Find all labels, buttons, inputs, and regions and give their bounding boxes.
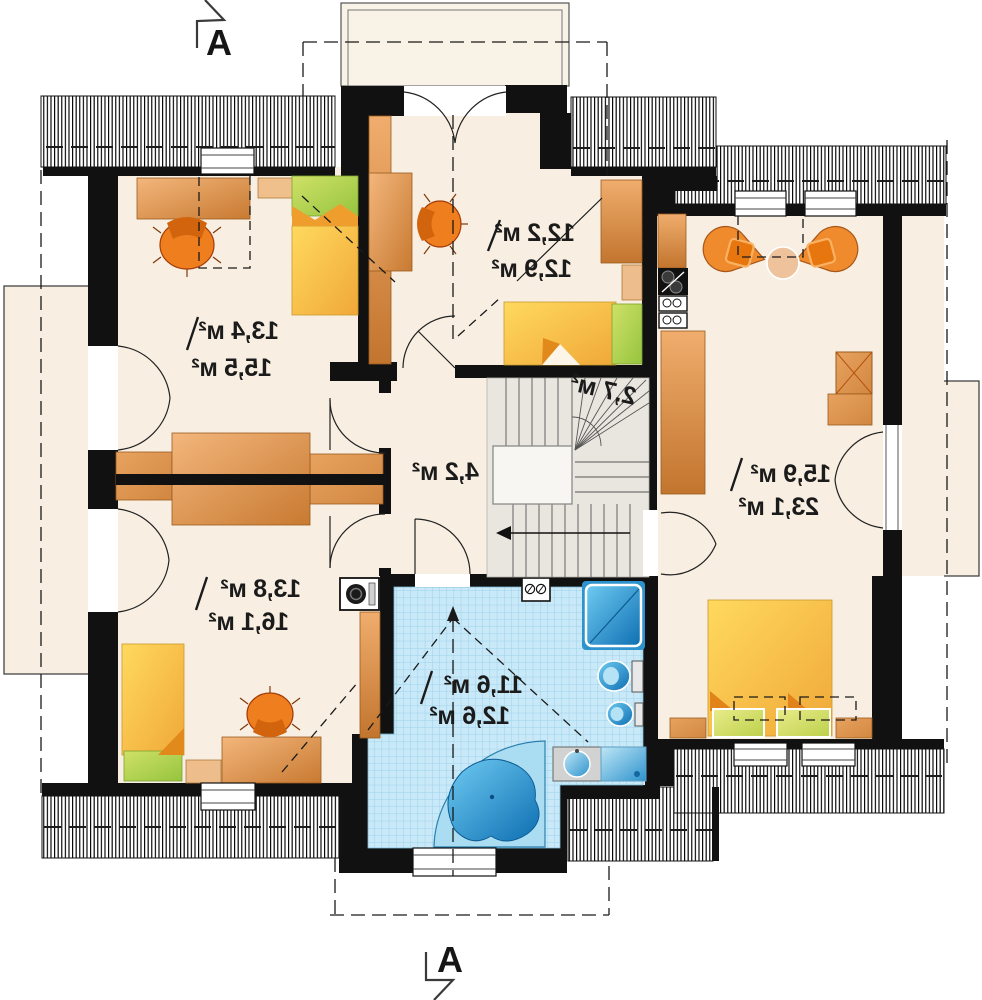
svg-text:16,1 м²: 16,1 м² xyxy=(209,608,289,636)
svg-text:4,2 м²: 4,2 м² xyxy=(412,458,479,486)
svg-text:12,6 м²: 12,6 м² xyxy=(430,702,510,730)
svg-text:15,5 м²: 15,5 м² xyxy=(192,354,272,382)
svg-text:11,6 м²: 11,6 м² xyxy=(444,671,523,699)
svg-text:12,9 м²: 12,9 м² xyxy=(492,255,572,283)
svg-text:A: A xyxy=(206,22,232,63)
svg-text:23,1 м²: 23,1 м² xyxy=(739,493,819,521)
svg-text:15,9 м²: 15,9 м² xyxy=(751,460,831,488)
svg-text:13,4 м²: 13,4 м² xyxy=(199,317,279,345)
svg-text:13,8 м²: 13,8 м² xyxy=(221,575,301,603)
svg-text:A: A xyxy=(437,939,463,980)
svg-text:12,2 м²: 12,2 м² xyxy=(495,219,575,247)
